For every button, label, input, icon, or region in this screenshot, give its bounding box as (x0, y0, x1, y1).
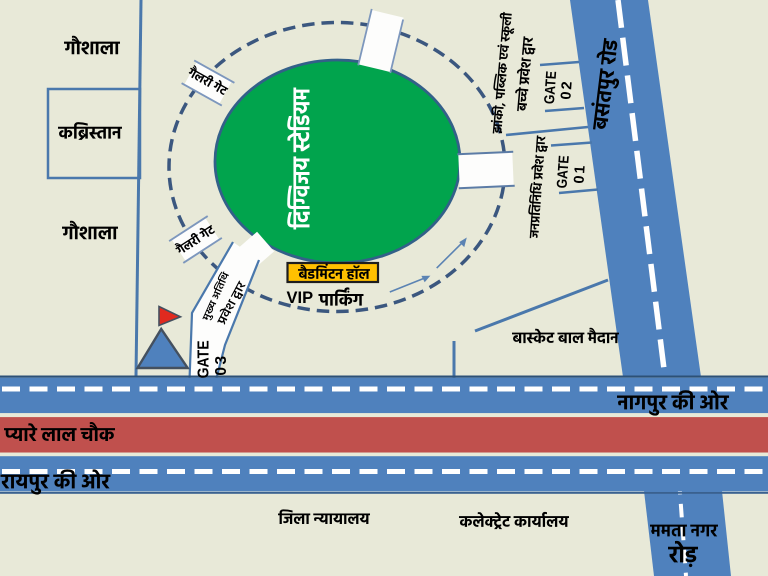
svg-text:VIP: VIP (287, 289, 314, 307)
svg-text:02: 02 (558, 79, 575, 100)
svg-text:GATE: GATE (555, 155, 573, 189)
svg-text:GATE: GATE (195, 340, 212, 378)
svg-text:01: 01 (571, 163, 588, 184)
svg-text:03: 03 (213, 353, 230, 375)
